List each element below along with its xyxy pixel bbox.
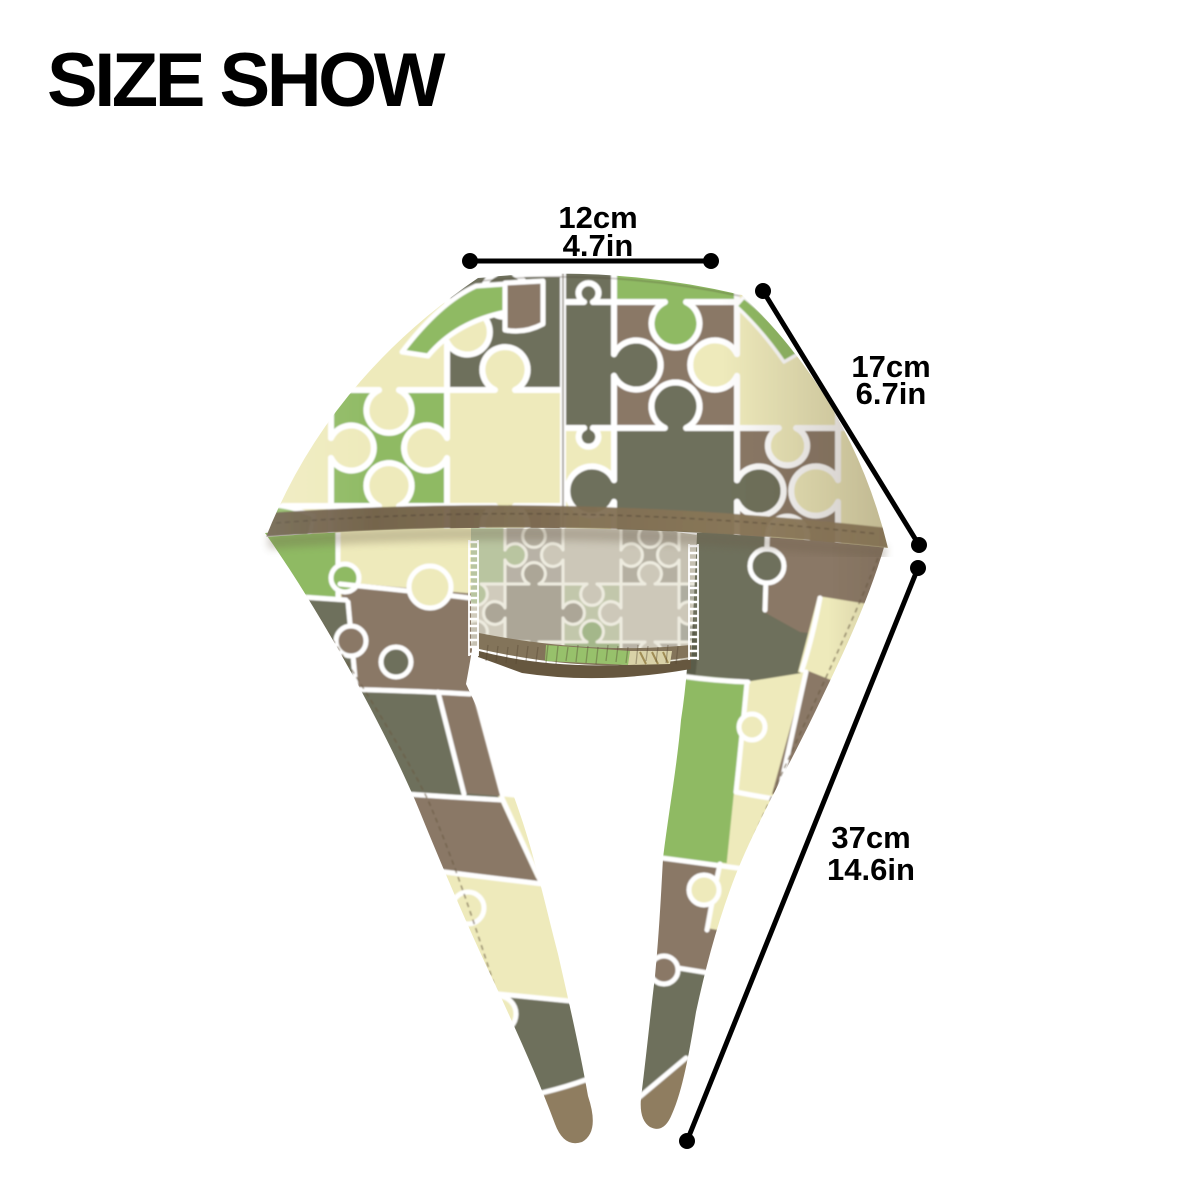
svg-text:SIZE SHOW: SIZE SHOW: [47, 38, 446, 123]
svg-text:6.7in: 6.7in: [856, 376, 927, 411]
svg-text:14.6in: 14.6in: [827, 852, 915, 887]
svg-text:37cm: 37cm: [831, 820, 910, 855]
svg-text:4.7in: 4.7in: [563, 228, 634, 263]
